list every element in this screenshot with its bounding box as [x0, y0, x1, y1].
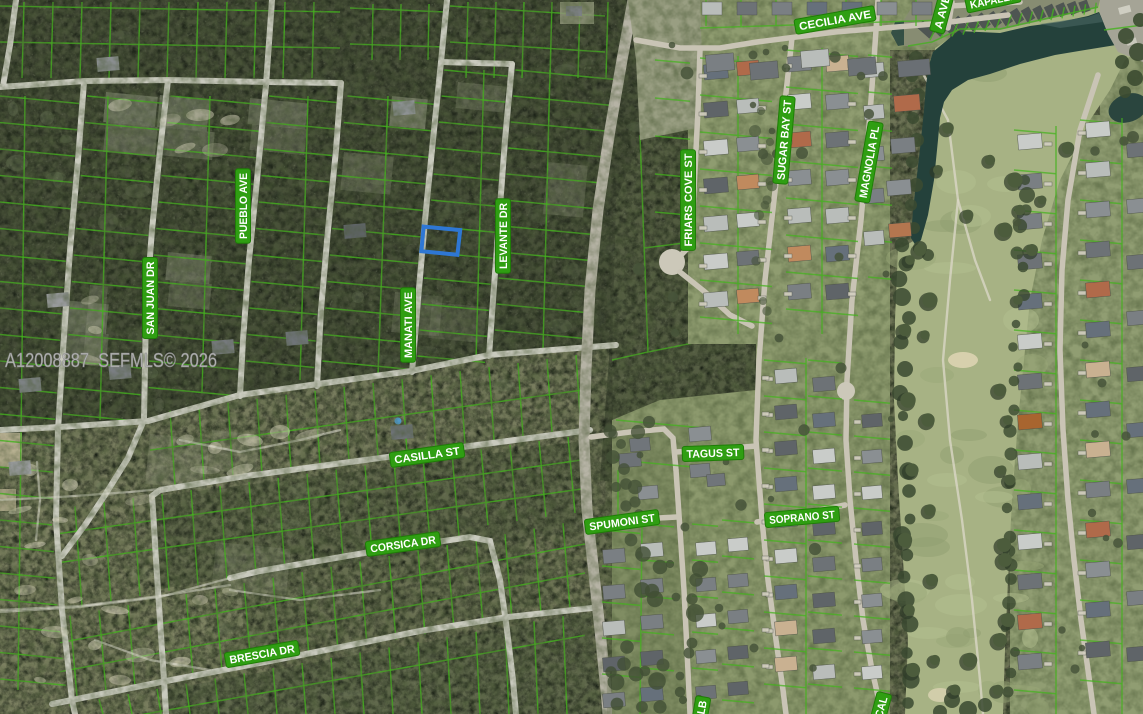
svg-text:LEVANTE DR: LEVANTE DR	[498, 203, 510, 269]
svg-text:FRIARS COVE ST: FRIARS COVE ST	[683, 153, 695, 246]
svg-text:A12008887 SEFMLS© 2026: A12008887 SEFMLS© 2026	[5, 350, 217, 372]
svg-text:TAGUS ST: TAGUS ST	[686, 447, 740, 461]
svg-text:ALB: ALB	[694, 700, 709, 714]
svg-text:SAN JUAN DR: SAN JUAN DR	[145, 261, 157, 334]
svg-text:PUEBLO AVE: PUEBLO AVE	[238, 173, 250, 239]
svg-text:MANATI AVE: MANATI AVE	[403, 292, 415, 358]
